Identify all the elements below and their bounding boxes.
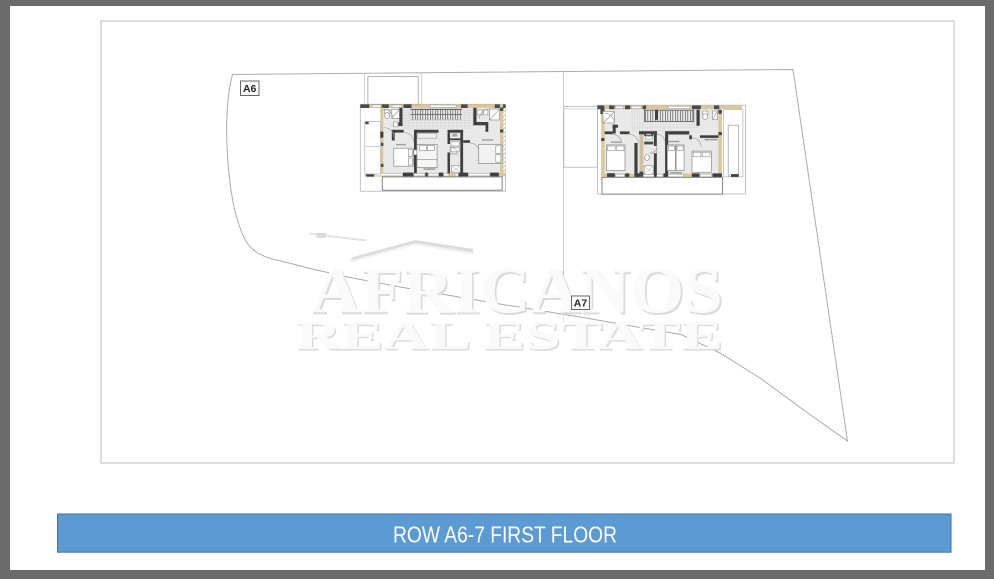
svg-text:A6: A6	[243, 83, 257, 95]
svg-text:A7: A7	[574, 298, 588, 310]
svg-text:ROW A6-7 FIRST FLOOR: ROW A6-7 FIRST FLOOR	[393, 522, 617, 548]
svg-text:REAL ESTATE: REAL ESTATE	[296, 313, 723, 358]
